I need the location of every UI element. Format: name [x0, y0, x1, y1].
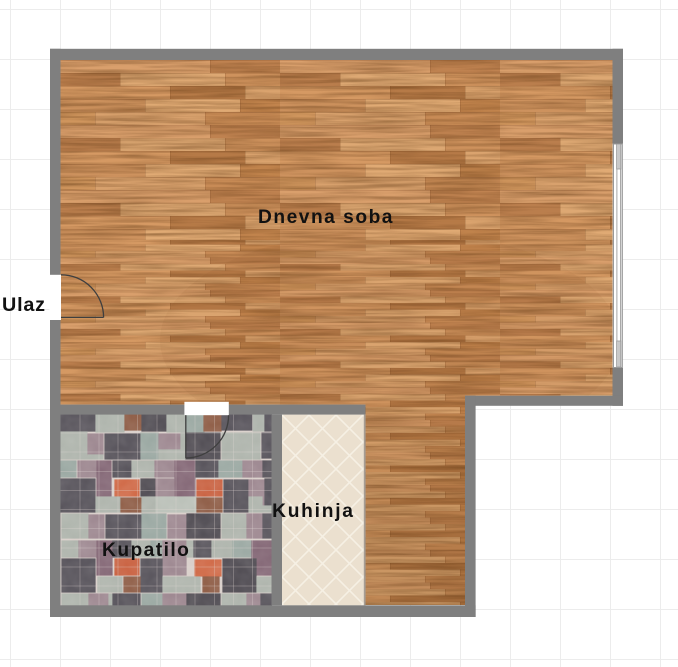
svg-text:Kuhinja: Kuhinja: [272, 501, 355, 522]
svg-text:Kupatilo: Kupatilo: [102, 540, 190, 561]
svg-text:Ulaz: Ulaz: [2, 294, 46, 316]
svg-text:Dnevna soba: Dnevna soba: [258, 207, 394, 228]
